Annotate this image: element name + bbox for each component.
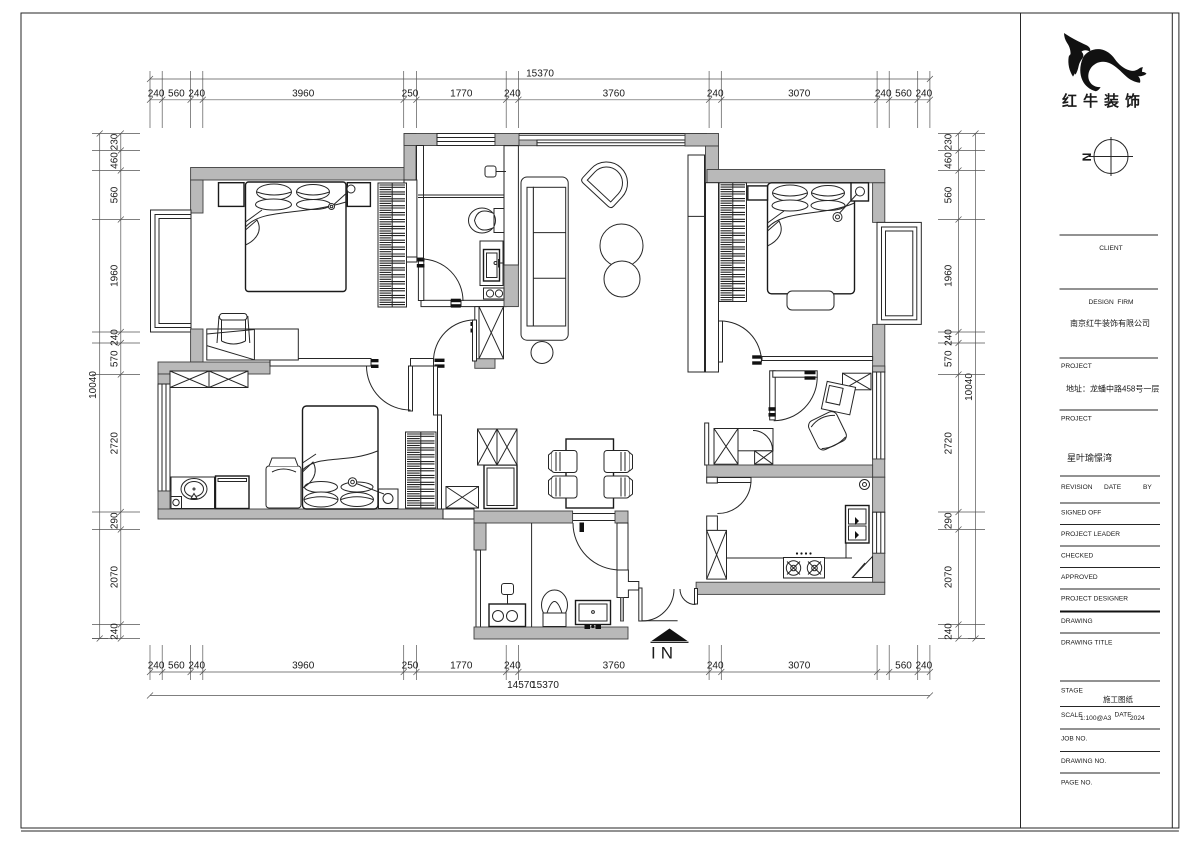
svg-text:3760: 3760 <box>603 661 626 672</box>
svg-text:15370: 15370 <box>531 680 559 691</box>
svg-text:2720: 2720 <box>944 432 955 455</box>
svg-text:570: 570 <box>944 350 955 367</box>
svg-text:APPROVED: APPROVED <box>1061 574 1098 581</box>
svg-text:星叶瑜憬湾: 星叶瑜憬湾 <box>1067 452 1112 463</box>
svg-text:1770: 1770 <box>450 89 473 100</box>
svg-text:240: 240 <box>944 329 955 346</box>
svg-text:JOB NO.: JOB NO. <box>1061 736 1088 743</box>
svg-text:240: 240 <box>707 89 724 100</box>
svg-text:PROJECT DESIGNER: PROJECT DESIGNER <box>1061 596 1128 603</box>
svg-text:240: 240 <box>188 89 205 100</box>
svg-text:250: 250 <box>402 661 419 672</box>
svg-text:DRAWING TITLE: DRAWING TITLE <box>1061 640 1113 647</box>
svg-text:3960: 3960 <box>292 661 315 672</box>
svg-text:红牛装饰: 红牛装饰 <box>1062 92 1146 110</box>
svg-text:DRAWING NO.: DRAWING NO. <box>1061 758 1106 765</box>
svg-text:IN: IN <box>651 644 678 663</box>
svg-text:10040: 10040 <box>964 373 975 401</box>
svg-text:460: 460 <box>944 152 955 169</box>
svg-text:地址：龙蟠中路458号一层: 地址：龙蟠中路458号一层 <box>1066 384 1159 394</box>
svg-text:560: 560 <box>944 186 955 203</box>
svg-text:REVISION: REVISION <box>1061 484 1093 491</box>
svg-text:PROJECT LEADER: PROJECT LEADER <box>1061 531 1120 538</box>
svg-text:560: 560 <box>168 661 185 672</box>
svg-text:南京红牛装饰有限公司: 南京红牛装饰有限公司 <box>1070 318 1150 328</box>
svg-text:3960: 3960 <box>292 89 315 100</box>
svg-text:3760: 3760 <box>603 89 626 100</box>
svg-text:560: 560 <box>895 661 912 672</box>
svg-text:DRAWING: DRAWING <box>1061 618 1093 625</box>
svg-text:1770: 1770 <box>450 661 473 672</box>
svg-text:460: 460 <box>110 152 121 169</box>
svg-text:240: 240 <box>944 623 955 640</box>
svg-text:2070: 2070 <box>944 565 955 588</box>
svg-text:240: 240 <box>915 661 932 672</box>
svg-text:CLIENT: CLIENT <box>1099 245 1122 252</box>
svg-text:230: 230 <box>944 133 955 150</box>
svg-text:240: 240 <box>707 661 724 672</box>
svg-text:BY: BY <box>1143 484 1152 491</box>
svg-text:1960: 1960 <box>110 264 121 287</box>
svg-text:PAGE NO.: PAGE NO. <box>1061 780 1093 787</box>
svg-text:1960: 1960 <box>944 264 955 287</box>
svg-text:290: 290 <box>110 512 121 529</box>
svg-text:施工图纸: 施工图纸 <box>1103 694 1133 704</box>
svg-text:2720: 2720 <box>110 432 121 455</box>
svg-text:560: 560 <box>168 89 185 100</box>
svg-text:DATE: DATE <box>1104 484 1122 491</box>
svg-text:240: 240 <box>504 661 521 672</box>
svg-text:PROJECT: PROJECT <box>1061 363 1092 370</box>
svg-text:290: 290 <box>944 512 955 529</box>
svg-text:SIGNED OFF: SIGNED OFF <box>1061 510 1101 517</box>
svg-text:240: 240 <box>504 89 521 100</box>
svg-text:560: 560 <box>110 186 121 203</box>
svg-text:15370: 15370 <box>526 69 554 80</box>
svg-text:10040: 10040 <box>88 371 99 399</box>
svg-text:1:100@A3: 1:100@A3 <box>1080 715 1112 722</box>
svg-text:2024: 2024 <box>1130 715 1145 722</box>
svg-text:240: 240 <box>875 89 892 100</box>
svg-text:3070: 3070 <box>788 661 811 672</box>
svg-text:STAGE: STAGE <box>1061 688 1083 695</box>
svg-text:240: 240 <box>148 89 165 100</box>
svg-text:240: 240 <box>110 623 121 640</box>
svg-text:PROJECT: PROJECT <box>1061 416 1092 423</box>
svg-text:3070: 3070 <box>788 89 811 100</box>
svg-text:CHECKED: CHECKED <box>1061 553 1093 560</box>
svg-text:250: 250 <box>402 89 419 100</box>
svg-text:240: 240 <box>110 329 121 346</box>
svg-text:230: 230 <box>110 133 121 150</box>
svg-text:N: N <box>1080 153 1094 162</box>
svg-text:240: 240 <box>915 89 932 100</box>
svg-text:570: 570 <box>110 350 121 367</box>
svg-text:240: 240 <box>148 661 165 672</box>
svg-text:240: 240 <box>188 661 205 672</box>
svg-text:DESIGN FIRM: DESIGN FIRM <box>1088 299 1133 306</box>
svg-text:560: 560 <box>895 89 912 100</box>
svg-text:2070: 2070 <box>110 565 121 588</box>
